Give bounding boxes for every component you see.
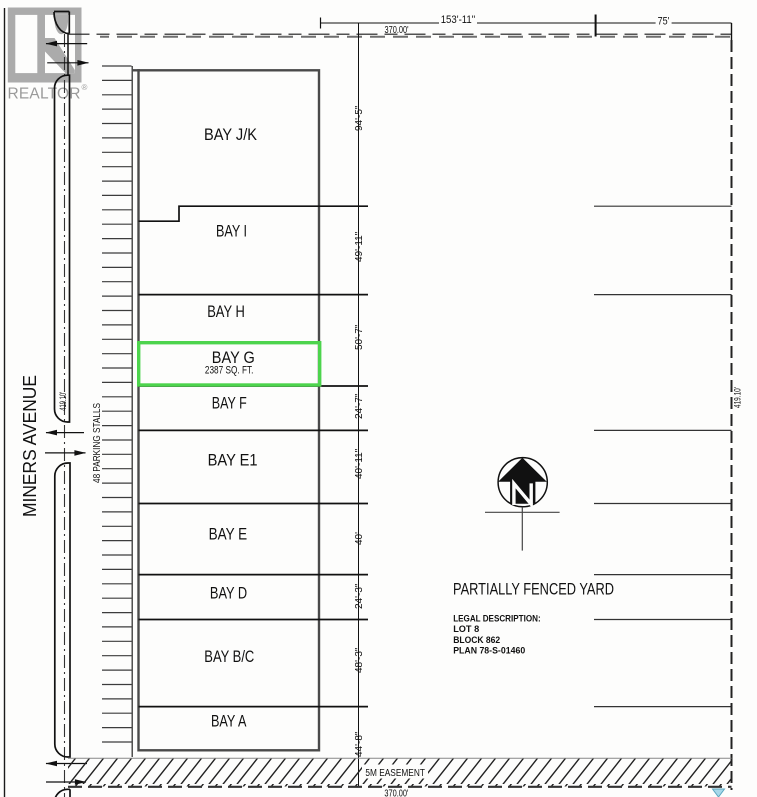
svg-text:40': 40' — [354, 532, 365, 545]
svg-text:24'-3": 24'-3" — [354, 583, 365, 609]
svg-text:MINERS AVENUE: MINERS AVENUE — [20, 375, 40, 517]
svg-text:BAY D: BAY D — [210, 585, 247, 603]
svg-text:419.10': 419.10' — [58, 392, 68, 411]
svg-text:48 PARKING STALLS: 48 PARKING STALLS — [92, 403, 103, 483]
svg-text:LOT 8: LOT 8 — [453, 624, 479, 635]
svg-text:PLAN 78-S-01460: PLAN 78-S-01460 — [453, 646, 525, 657]
svg-text:BAY I: BAY I — [216, 223, 247, 241]
svg-text:48'-3": 48'-3" — [354, 647, 365, 673]
svg-text:BAY E1: BAY E1 — [208, 452, 258, 470]
svg-text:50'-7": 50'-7" — [354, 324, 365, 350]
svg-text:419.10': 419.10' — [733, 387, 743, 408]
svg-text:75': 75' — [658, 15, 670, 27]
svg-text:BAY A: BAY A — [211, 713, 246, 731]
svg-text:LEGAL DESCRIPTION:: LEGAL DESCRIPTION: — [453, 614, 541, 625]
svg-text:94'-5": 94'-5" — [354, 105, 365, 131]
svg-text:BAY E: BAY E — [209, 525, 248, 543]
svg-text:2387 SQ. FT.: 2387 SQ. FT. — [205, 365, 254, 377]
svg-text:370.00': 370.00' — [384, 788, 408, 797]
svg-text:40'-11": 40'-11" — [354, 448, 365, 479]
svg-text:BAY J/K: BAY J/K — [204, 126, 257, 144]
svg-text:153'-11": 153'-11" — [441, 14, 476, 26]
svg-text:PARTIALLY FENCED YARD: PARTIALLY FENCED YARD — [453, 581, 614, 599]
svg-text:BAY B/C: BAY B/C — [204, 648, 254, 666]
svg-text:BLOCK 862: BLOCK 862 — [453, 635, 500, 646]
svg-text:®: ® — [82, 83, 88, 92]
svg-text:5M EASEMENT: 5M EASEMENT — [365, 768, 425, 779]
svg-text:49'-11": 49'-11" — [354, 231, 365, 262]
svg-text:370.00': 370.00' — [385, 25, 409, 36]
svg-text:BAY H: BAY H — [207, 303, 245, 321]
svg-text:44'-8": 44'-8" — [354, 731, 365, 757]
svg-text:24'-7": 24'-7" — [354, 393, 365, 419]
svg-text:BAY F: BAY F — [212, 395, 247, 413]
